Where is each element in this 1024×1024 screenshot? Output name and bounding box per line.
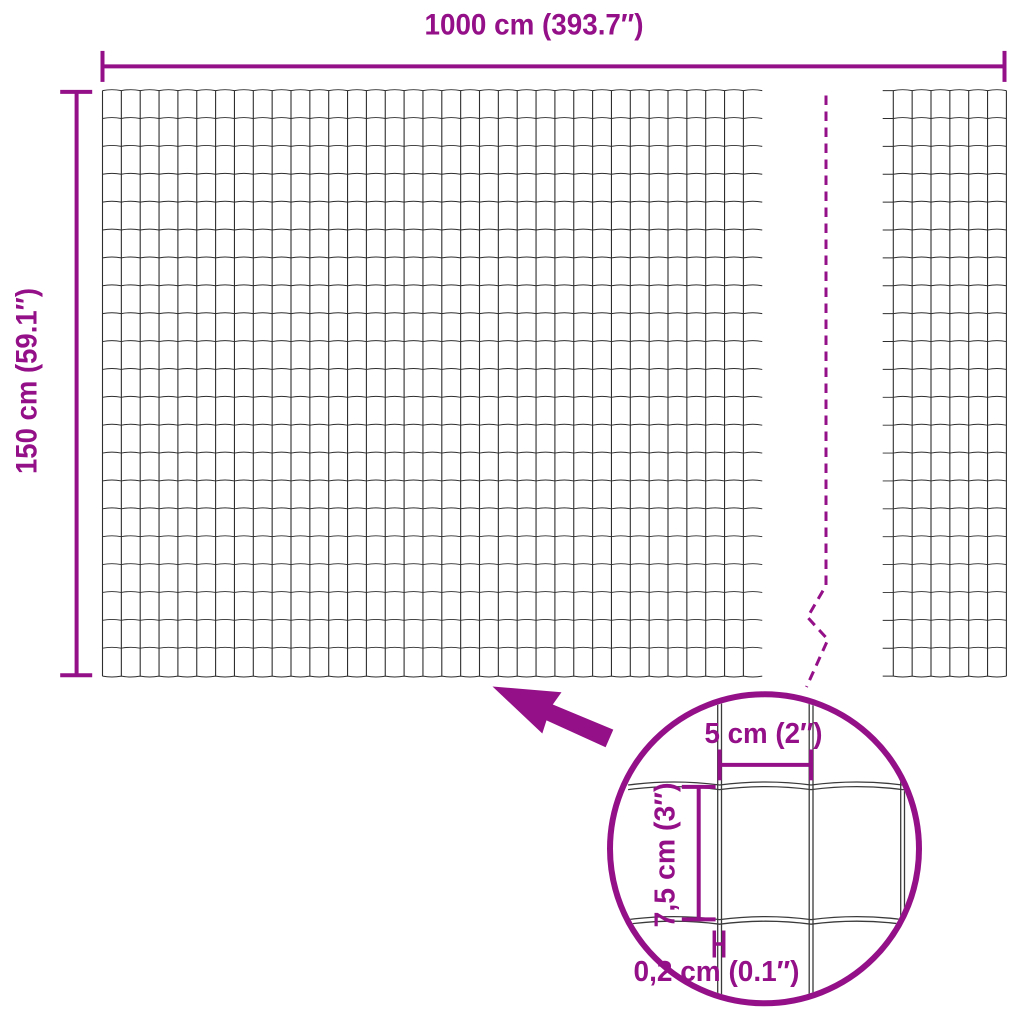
svg-text:7,5 cm (3″): 7,5 cm (3″) — [650, 783, 682, 928]
svg-text:0,2 cm (0.1″): 0,2 cm (0.1″) — [634, 956, 800, 988]
svg-text:5 cm (2″): 5 cm (2″) — [705, 718, 823, 750]
svg-text:150 cm (59.1″): 150 cm (59.1″) — [11, 288, 44, 474]
svg-text:1000 cm (393.7″): 1000 cm (393.7″) — [425, 8, 644, 41]
